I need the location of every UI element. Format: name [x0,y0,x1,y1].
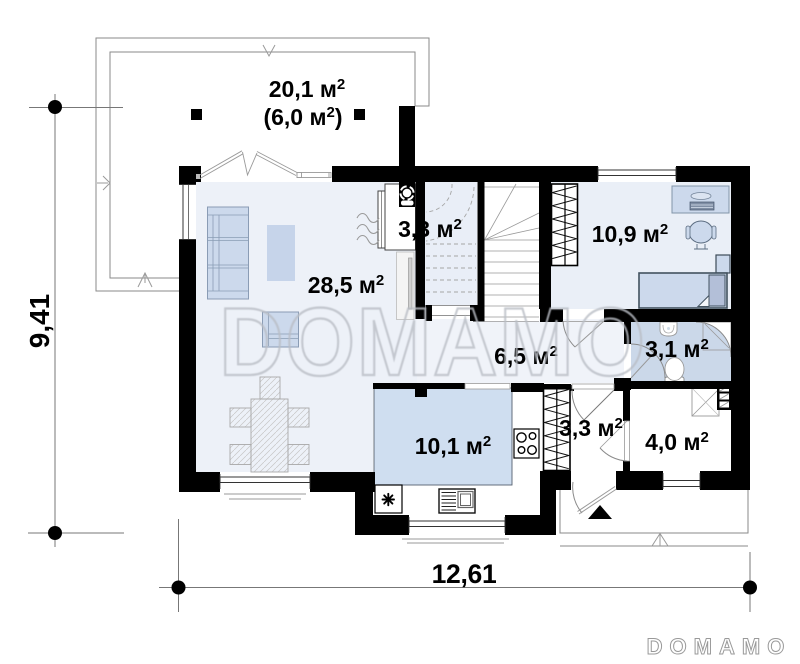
svg-text:10,9 м2: 10,9 м2 [592,221,669,247]
svg-text:4,0 м2: 4,0 м2 [645,429,709,455]
svg-text:10,1 м2: 10,1 м2 [415,433,492,459]
svg-text:12,61: 12,61 [432,559,497,589]
svg-text:DOMAMO: DOMAMO [647,634,792,659]
svg-text:20,1 м2: 20,1 м2 [269,76,346,102]
svg-text:3,1 м2: 3,1 м2 [645,336,709,362]
svg-text:9,41: 9,41 [24,294,55,349]
svg-text:(6,0 м2): (6,0 м2) [263,104,342,130]
svg-text:DOMAMO: DOMAMO [219,288,646,396]
svg-text:3,3 м2: 3,3 м2 [559,415,623,441]
svg-text:3,3 м2: 3,3 м2 [398,216,462,242]
